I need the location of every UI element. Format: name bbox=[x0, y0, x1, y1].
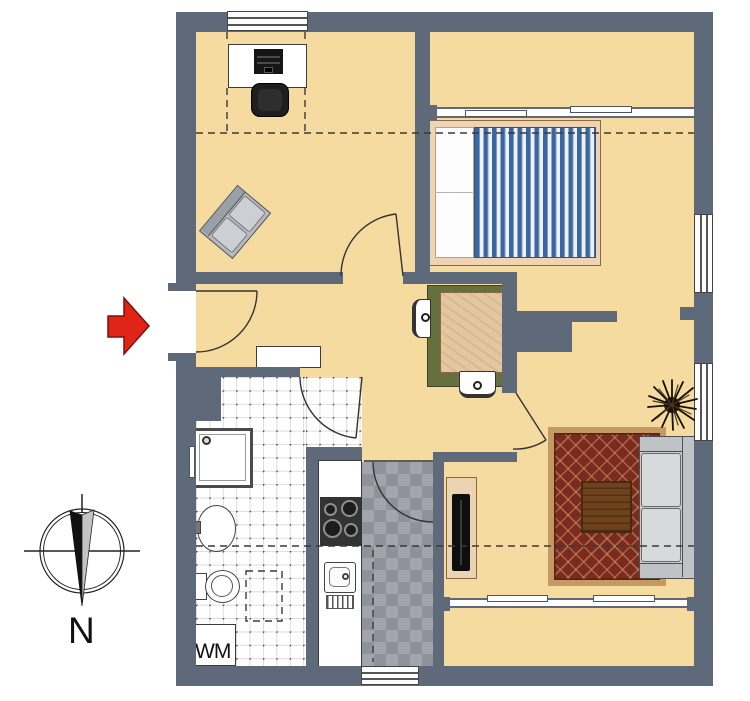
kitchen-sink-faucet bbox=[342, 573, 349, 580]
sofa-arm-top bbox=[640, 437, 682, 452]
bed-blanket bbox=[474, 127, 596, 258]
entrance-arrow-icon bbox=[108, 298, 149, 354]
entrance-jamb-bottom bbox=[168, 353, 176, 361]
stove-burner bbox=[344, 523, 358, 537]
entrance-jamb-top bbox=[168, 283, 176, 291]
dining-chair-ring bbox=[473, 381, 482, 390]
stove-burner bbox=[323, 519, 342, 538]
wall-dining-living bbox=[502, 284, 517, 393]
hallway-cabinet bbox=[256, 346, 321, 368]
monitor-line bbox=[257, 62, 280, 64]
dining-chair-bottom bbox=[459, 371, 496, 398]
office-chair bbox=[251, 83, 289, 117]
living-sliding-panel bbox=[593, 595, 655, 602]
toilet-bowl bbox=[205, 570, 240, 603]
wall-bathroom-chunk bbox=[176, 377, 221, 421]
dining-table bbox=[440, 292, 503, 373]
dining-chair-ring bbox=[421, 313, 430, 322]
compass-north-label: N bbox=[68, 612, 95, 649]
compass-needle-light bbox=[82, 510, 94, 606]
stove bbox=[320, 497, 362, 546]
wall-stub-right bbox=[680, 307, 694, 320]
wall-bathroom-kitchen bbox=[306, 447, 318, 667]
kitchen-floor bbox=[362, 462, 433, 667]
wall-kitchen-living bbox=[433, 452, 444, 667]
bathroom-floor-upper bbox=[306, 377, 362, 447]
sofa-cushion bbox=[641, 453, 681, 507]
monitor-base bbox=[264, 67, 273, 73]
tv-icon bbox=[452, 494, 470, 571]
coffee-table bbox=[581, 481, 632, 533]
wall-bedroom-dining bbox=[403, 272, 517, 284]
bed-sheet-fold-line bbox=[435, 192, 474, 193]
bedroom-sliding-panel bbox=[570, 106, 632, 113]
dining-chair-left bbox=[412, 299, 431, 338]
wall-outer-bottom bbox=[176, 666, 713, 686]
wall-outer-left-upper bbox=[176, 12, 196, 291]
bedroom-partition-end bbox=[430, 105, 437, 120]
compass-needle-dark bbox=[70, 511, 82, 606]
bathroom-sink bbox=[197, 505, 236, 552]
wall-living-chunk bbox=[517, 311, 572, 352]
sofa-cushion bbox=[641, 508, 681, 562]
living-partition-end-left bbox=[438, 597, 450, 611]
tv-screen-line bbox=[460, 500, 462, 565]
stove-burner bbox=[341, 500, 358, 517]
washing-machine-label: WM bbox=[195, 641, 230, 662]
office-chair-seat bbox=[258, 89, 282, 111]
wall-living-strip bbox=[572, 311, 617, 322]
wall-office-hallway bbox=[196, 272, 343, 284]
monitor-line bbox=[257, 56, 280, 58]
living-partition-end-right bbox=[687, 597, 699, 611]
shower-door-handle bbox=[189, 446, 195, 478]
compass-rose bbox=[24, 494, 140, 606]
window-kitchen bbox=[361, 666, 419, 685]
double-bed bbox=[428, 120, 601, 266]
wall-hallway-bathroom bbox=[176, 367, 300, 377]
wall-outer-right bbox=[694, 12, 713, 686]
shower bbox=[193, 428, 253, 488]
floor-plan: WM bbox=[0, 0, 750, 701]
toilet-seat-line bbox=[211, 575, 233, 597]
wall-living-top bbox=[433, 452, 517, 462]
kitchen-sink-drainboard bbox=[326, 595, 354, 609]
shower-head-icon bbox=[202, 436, 211, 445]
washing-machine: WM bbox=[192, 624, 236, 666]
computer-monitor-icon bbox=[254, 49, 283, 74]
bedroom-sliding-panel bbox=[465, 110, 527, 117]
window-bedroom bbox=[694, 214, 713, 293]
sofa bbox=[639, 436, 697, 579]
living-sliding-panel bbox=[487, 595, 548, 602]
window-office bbox=[227, 11, 308, 31]
sofa-arm-bottom bbox=[640, 563, 682, 578]
window-living bbox=[694, 363, 713, 441]
kitchen-sink bbox=[324, 562, 356, 593]
wall-office-bedroom bbox=[415, 32, 430, 272]
stove-burner bbox=[324, 503, 337, 516]
wall-kitchen-top bbox=[306, 447, 362, 460]
